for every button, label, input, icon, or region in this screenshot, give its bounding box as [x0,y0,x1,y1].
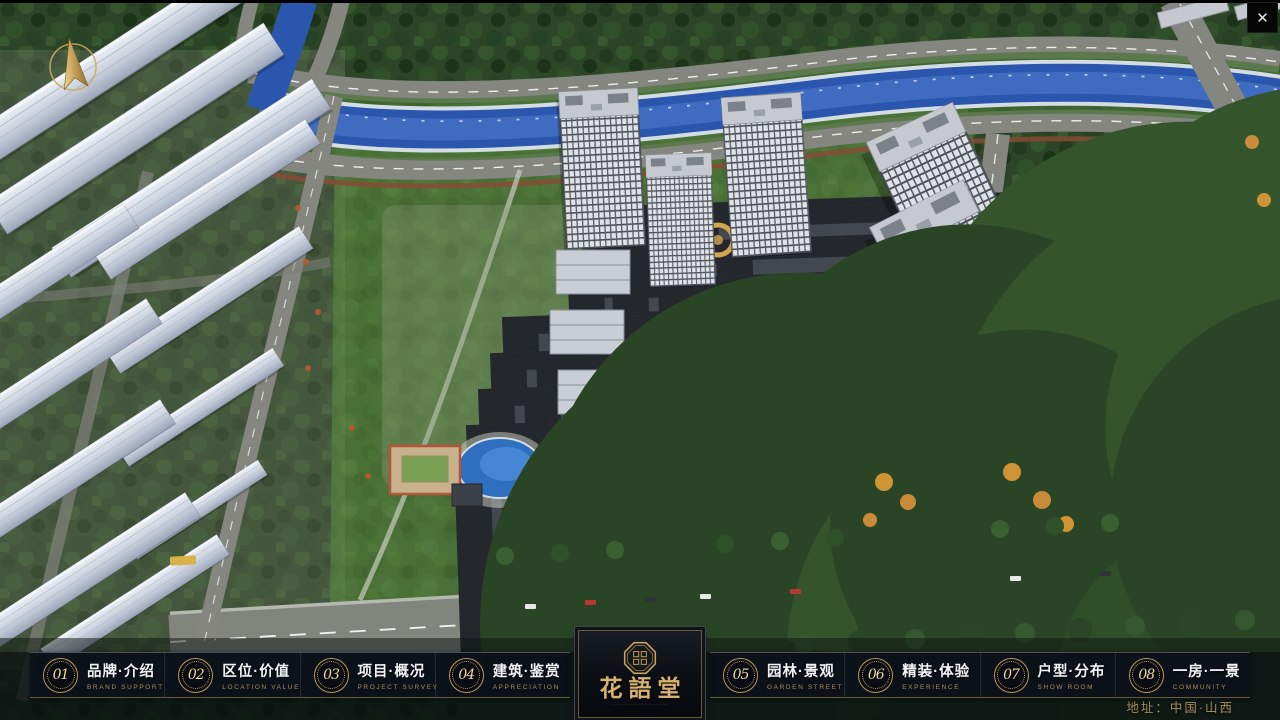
menu-label-zh: 建筑·鉴赏 [493,660,561,681]
menu-label-en: SHOW ROOM [1038,684,1106,691]
menu-number: 01 [53,668,69,682]
menu-item-02[interactable]: 02 区位·价值 LOCATION VALUE [165,653,300,697]
menu-number: 06 [868,668,884,682]
menu-number: 05 [733,668,749,682]
brand-seal-icon [623,641,657,675]
menu-number-badge: 02 [178,658,213,693]
site-plan-rendering [0,0,1280,720]
menu-number-inner-ring: 07 [997,661,1025,689]
menu-group-right: 05 园林·景观 GARDEN STREET 06 精装·体验 EXPERIEN… [710,652,1250,698]
menu-number-badge: 04 [449,658,484,693]
menu-number: 08 [1138,668,1154,682]
menu-number-badge: 08 [1129,658,1164,693]
brand-name: 花語堂 [594,677,687,700]
menu-text: 品牌·介绍 BRAND SUPPORT [87,660,164,691]
menu-label-en: COMMUNITY [1173,684,1241,691]
menu-item-01[interactable]: 01 品牌·介绍 BRAND SUPPORT [30,653,165,697]
menu-number-badge: 01 [43,658,78,693]
menu-number-inner-ring: 06 [862,661,890,689]
menu-item-06[interactable]: 06 精装·体验 EXPERIENCE [845,653,980,697]
menu-number-inner-ring: 05 [727,661,755,689]
menu-text: 园林·景观 GARDEN STREET [767,660,843,691]
menu-label-zh: 区位·价值 [222,660,299,681]
menu-item-07[interactable]: 07 户型·分布 SHOW ROOM [981,653,1116,697]
brand-logo-plaque[interactable]: 花語堂 ······················· [578,630,702,718]
menu-number-badge: 06 [858,658,893,693]
menu-label-en: GARDEN STREET [767,684,843,691]
menu-number: 07 [1003,668,1019,682]
close-button[interactable]: ✕ [1247,2,1278,33]
menu-text: 项目·概况 PROJECT SURVEY [358,660,435,691]
menu-number: 02 [188,668,204,682]
menu-label-zh: 品牌·介绍 [87,660,164,681]
menu-label-zh: 精装·体验 [902,660,970,681]
menu-item-08[interactable]: 08 一房·一景 COMMUNITY [1116,653,1250,697]
menu-label-zh: 户型·分布 [1038,660,1106,681]
menu-text: 户型·分布 SHOW ROOM [1038,660,1106,691]
menu-number-inner-ring: 01 [47,661,75,689]
project-address: 地址：中国·山西 [1126,697,1234,716]
brand-caption: ······················· [611,703,668,708]
menu-number-inner-ring: 08 [1132,661,1160,689]
menu-item-04[interactable]: 04 建筑·鉴赏 APPRECIATION [436,653,570,697]
compass-north-indicator [42,34,104,96]
menu-item-05[interactable]: 05 园林·景观 GARDEN STREET [710,653,845,697]
menu-number-badge: 07 [994,658,1029,693]
menu-label-en: APPRECIATION [493,684,561,691]
menu-number-badge: 03 [314,658,349,693]
menu-number-badge: 05 [723,658,758,693]
menu-label-en: BRAND SUPPORT [87,684,164,691]
menu-label-en: LOCATION VALUE [222,684,299,691]
menu-text: 精装·体验 EXPERIENCE [902,660,970,691]
menu-item-03[interactable]: 03 项目·概况 PROJECT SURVEY [301,653,436,697]
menu-number: 03 [323,668,339,682]
menu-number-inner-ring: 04 [452,661,480,689]
menu-number-inner-ring: 02 [182,661,210,689]
menu-text: 一房·一景 COMMUNITY [1173,660,1241,691]
menu-label-zh: 一房·一景 [1173,660,1241,681]
menu-text: 建筑·鉴赏 APPRECIATION [493,660,561,691]
menu-group-left: 01 品牌·介绍 BRAND SUPPORT 02 区位·价值 LOCATION… [30,652,570,698]
top-letterbox [0,0,1280,3]
clubhouse [390,446,460,494]
menu-label-en: EXPERIENCE [902,684,970,691]
menu-label-en: PROJECT SURVEY [358,684,435,691]
pavilion [452,484,482,506]
bottom-nav-bar: 01 品牌·介绍 BRAND SUPPORT 02 区位·价值 LOCATION… [0,652,1280,720]
menu-number: 04 [458,668,474,682]
menu-number-inner-ring: 03 [317,661,345,689]
menu-text: 区位·价值 LOCATION VALUE [222,660,299,691]
menu-label-zh: 园林·景观 [767,660,843,681]
menu-label-zh: 项目·概况 [358,660,435,681]
